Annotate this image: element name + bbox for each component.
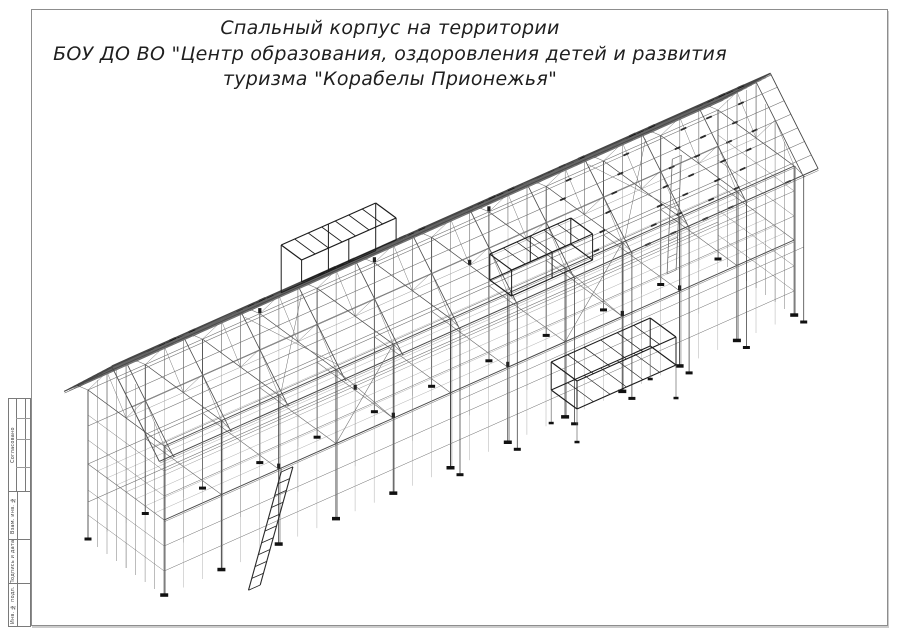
titleblock-divider	[17, 492, 18, 539]
drawing-title: Спальный корпус на территории БОУ ДО ВО …	[35, 16, 745, 93]
titleblock-inventory-section: Инв. № подл.	[8, 583, 31, 627]
drawing-sheet: { "title": { "line1": "Спальный корпус н…	[0, 0, 900, 636]
titleblock-row-line	[16, 439, 30, 440]
titleblock-divider	[25, 399, 26, 491]
titleblock-divider	[17, 584, 18, 626]
titleblock-replacement-inv-section: Взам. инв. №	[8, 491, 31, 540]
titleblock-row-line	[16, 467, 30, 468]
titleblock-divider	[16, 399, 17, 491]
drawing-title-line-1: Спальный корпус на территории	[35, 16, 745, 42]
titleblock-agreed-section: Согласовано	[8, 398, 31, 492]
titleblock-row-line	[16, 418, 30, 419]
titleblock-divider	[17, 540, 18, 583]
drawing-frame	[31, 9, 888, 626]
titleblock-signature-date-label: Подпись и дата	[9, 540, 17, 583]
drawing-title-line-3: туризма "Корабелы Прионежья"	[35, 67, 745, 93]
titleblock-inventory-label: Инв. № подл.	[9, 584, 17, 626]
titleblock-replacement-inv-label: Взам. инв. №	[9, 492, 17, 539]
drawing-title-line-2: БОУ ДО ВО "Центр образования, оздоровлен…	[35, 42, 745, 68]
titleblock-signature-date-section: Подпись и дата	[8, 539, 31, 584]
